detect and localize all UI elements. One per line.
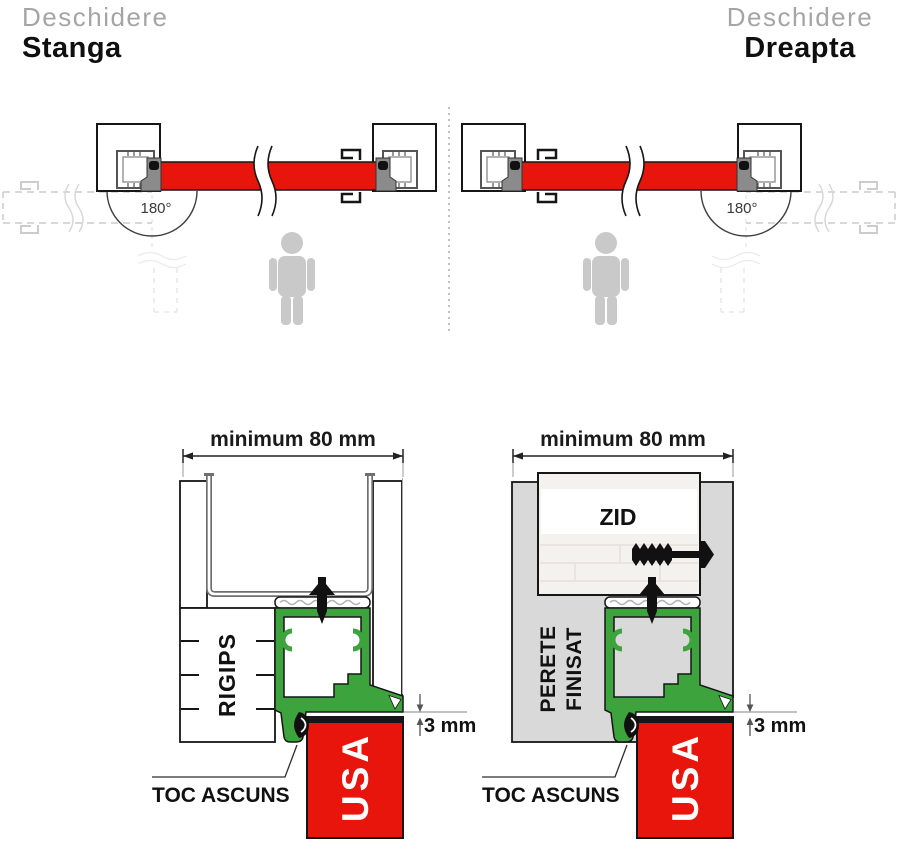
frame-label-left: TOC ASCUNS: [152, 784, 290, 808]
swing-angle-label-right: 180°: [720, 200, 764, 217]
header-left-subtitle: Deschidere: [22, 3, 169, 31]
door-label-right: USA: [664, 702, 708, 852]
door-plan-left: [3, 124, 436, 325]
header-left: Deschidere Stanga: [22, 3, 169, 63]
wall-label-right-line1: PERETE: [536, 584, 562, 754]
header-left-title: Stanga: [22, 33, 169, 63]
header-right: Deschidere Dreapta: [702, 3, 898, 63]
gap-label-right: 3 mm: [754, 715, 806, 738]
swing-angle-label-left: 180°: [134, 200, 178, 217]
dimension-label-left: minimum 80 mm: [183, 428, 403, 452]
door-plan-right: [462, 124, 895, 325]
frame-label-right: TOC ASCUNS: [482, 784, 620, 808]
gap-label-left: 3 mm: [424, 715, 476, 738]
wall-label-right: PERETE FINISAT: [536, 584, 590, 754]
masonry-label: ZID: [558, 504, 678, 531]
dimension-label-right: minimum 80 mm: [513, 428, 733, 452]
wall-label-left: RIGIPS: [214, 610, 242, 740]
wall-label-right-line2: FINISAT: [562, 584, 588, 754]
header-right-title: Dreapta: [702, 33, 898, 63]
door-label-left: USA: [334, 702, 378, 852]
header-right-subtitle: Deschidere: [702, 3, 898, 31]
zid-block: [538, 473, 700, 595]
